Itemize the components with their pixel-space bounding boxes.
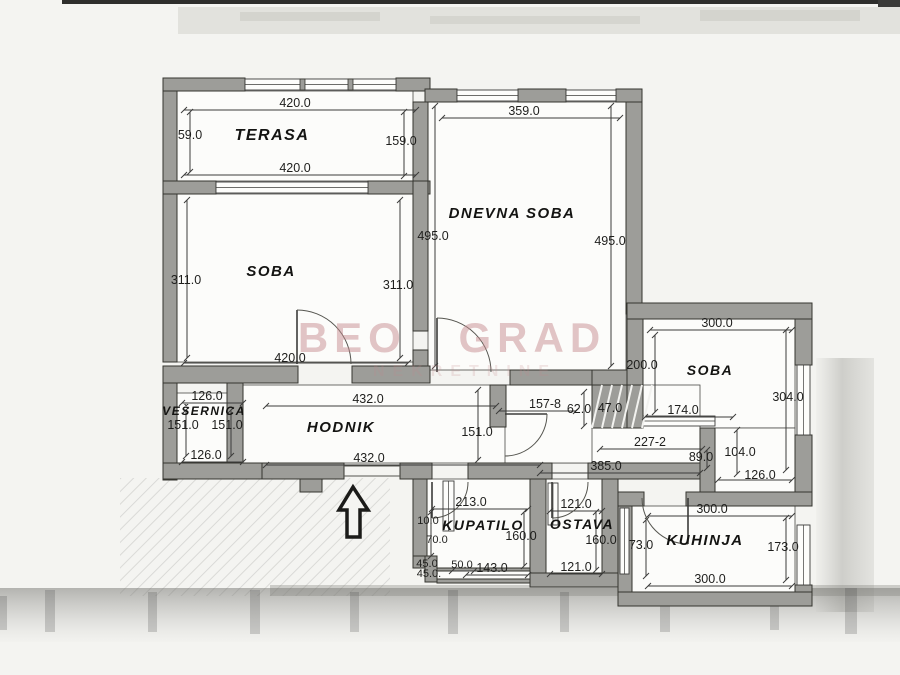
dimension-label: 420.0	[279, 161, 310, 175]
wall	[163, 463, 262, 479]
wall	[616, 89, 642, 102]
dimension-label: 159.0	[385, 134, 416, 148]
scan-smudge	[430, 16, 640, 24]
wall	[163, 366, 298, 383]
dimension-label: 227-2	[634, 435, 666, 449]
wall	[413, 181, 428, 331]
wall	[425, 89, 457, 102]
scan-smudge	[240, 12, 380, 21]
dimension-label: 47.0	[598, 401, 622, 415]
dimension-label: 157-8	[529, 397, 561, 411]
dimension-label: 300.0	[694, 572, 725, 586]
room-label-ostava: OSTAVA	[550, 516, 614, 532]
watermark-text-secondary: NEKRETNINE	[373, 363, 557, 380]
dimension-label: 121.0	[560, 560, 591, 574]
wall	[163, 78, 245, 91]
scan-right-shadow	[816, 358, 874, 612]
wall	[627, 319, 643, 385]
dimension-label: 311.0	[383, 278, 413, 292]
dimension-label: 495.0	[594, 234, 625, 248]
dimension-label: 89.0	[689, 450, 713, 464]
floorplan-drawing: BEO GRAD NEKRETNINE TERASASOBADNEVNA SOB…	[0, 0, 900, 675]
dimension-label: 70.0	[426, 534, 447, 546]
dimension-label: 50.0	[451, 559, 472, 571]
room-label-hodnik: HODNIK	[307, 419, 375, 436]
dimension-label: 420.0	[279, 96, 310, 110]
wall	[618, 492, 644, 506]
scan-top-edge-line	[62, 0, 900, 4]
dimension-label: 151.0	[167, 418, 198, 432]
room-label-dnevna-soba: DNEVNA SOBA	[449, 205, 576, 222]
dimension-label: 126.0	[191, 389, 222, 403]
wall	[300, 479, 322, 492]
wall	[518, 89, 566, 102]
railing-post	[348, 79, 353, 90]
watermark-text-primary: BEO GRAD	[298, 314, 606, 361]
wall	[163, 181, 216, 194]
wall	[795, 319, 812, 365]
dimension-label: 495.0	[417, 229, 448, 243]
room-label-terasa: TERASA	[235, 127, 310, 144]
dimension-label: 62.0	[567, 402, 591, 416]
room-floor	[715, 428, 795, 492]
room-label-soba-right: SOBA	[687, 362, 733, 378]
room-label-vesernica: VEŠERNICA	[162, 403, 246, 418]
dimension-label: 73.0	[629, 538, 653, 552]
dimension-label: 300.0	[696, 502, 727, 516]
dimension-label: 126.0	[744, 468, 775, 482]
scan-top-corner-mark	[878, 0, 900, 7]
dimension-label: 311.0	[171, 273, 201, 287]
room-label-kuhinja: KUHINJA	[666, 532, 743, 549]
dimension-label: 432.0	[352, 392, 383, 406]
wall	[618, 592, 812, 606]
wall	[626, 102, 642, 314]
dimension-label: 160.0	[505, 529, 536, 543]
dimension-label: 385.0	[590, 459, 621, 473]
dimension-label: 300.0	[701, 316, 732, 330]
dimension-label: 420.0	[274, 351, 305, 365]
railing-post	[300, 79, 305, 90]
dimension-label: 45.0.	[417, 568, 441, 580]
dimension-label: 160.0	[585, 533, 616, 547]
dimension-label: 359.0	[508, 104, 539, 118]
scanned-floorplan-page: BEO GRAD NEKRETNINE TERASASOBADNEVNA SOB…	[0, 0, 900, 675]
dimension-label: 10.0	[417, 515, 438, 527]
dimension-label: 173.0	[767, 540, 798, 554]
dimension-label: 126.0	[190, 448, 221, 462]
dimension-label: 59.0	[178, 128, 202, 142]
dimension-label: 151.0	[461, 425, 492, 439]
dimension-label: 432.0	[353, 451, 384, 465]
wall	[530, 573, 618, 587]
room-label-soba-left: SOBA	[246, 263, 295, 280]
wall	[437, 579, 530, 583]
dimension-label: 104.0	[724, 445, 755, 459]
scan-smudge	[700, 10, 860, 21]
dimension-label: 121.0	[560, 497, 591, 511]
dimension-label: 200.0	[626, 358, 657, 372]
dimension-label: 213.0	[455, 495, 486, 509]
wall	[163, 78, 177, 194]
dimension-label: 151.0	[211, 418, 242, 432]
dimension-label: 143.0	[476, 561, 507, 575]
dimension-label: 304.0	[772, 390, 803, 404]
dimension-label: 174.0	[667, 403, 698, 417]
